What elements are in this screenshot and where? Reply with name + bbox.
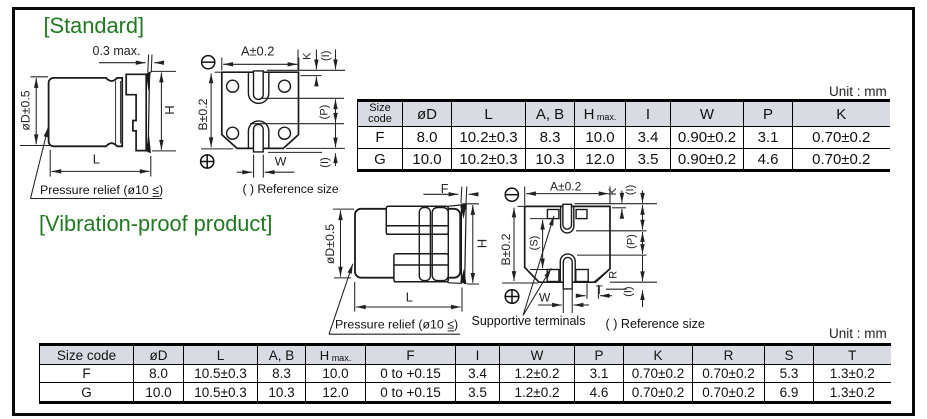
- svg-text:Pressure relief (ø10 ≤): Pressure relief (ø10 ≤): [335, 317, 458, 331]
- svg-text:(I): (I): [624, 185, 636, 195]
- svg-text:B±0.2: B±0.2: [196, 98, 210, 130]
- svg-text:Pressure relief (ø10 ≤): Pressure relief (ø10 ≤): [40, 183, 163, 197]
- svg-text:T: T: [596, 285, 603, 297]
- svg-text:( ) Reference size: ( ) Reference size: [606, 317, 705, 331]
- svg-text:Supportive terminals: Supportive terminals: [472, 314, 586, 328]
- svg-text:F: F: [441, 182, 449, 196]
- svg-text:K: K: [607, 187, 619, 195]
- svg-text:A±0.2: A±0.2: [550, 180, 582, 194]
- svg-text:A±0.2: A±0.2: [241, 43, 274, 58]
- svg-text:R: R: [608, 271, 620, 279]
- svg-text:(P): (P): [318, 105, 330, 120]
- svg-text:L: L: [406, 290, 413, 304]
- svg-text:(I): (I): [319, 157, 331, 167]
- svg-text:( ) Reference size: ( ) Reference size: [243, 182, 339, 196]
- svg-text:H: H: [475, 239, 490, 248]
- svg-text:K: K: [302, 52, 314, 60]
- svg-text:L: L: [93, 153, 100, 167]
- svg-text:(S): (S): [529, 236, 541, 251]
- svg-text:(P): (P): [626, 234, 638, 249]
- svg-text:W: W: [539, 291, 551, 305]
- svg-text:(I): (I): [623, 286, 635, 296]
- svg-text:(I): (I): [320, 51, 332, 61]
- svg-text:0.3 max.: 0.3 max.: [93, 44, 141, 58]
- svg-text:W: W: [275, 155, 287, 169]
- svg-text:øD±0.5: øD±0.5: [19, 90, 33, 130]
- svg-text:B±0.2: B±0.2: [499, 233, 513, 265]
- svg-text:øD±0.5: øD±0.5: [323, 224, 337, 264]
- svg-text:H: H: [162, 105, 177, 114]
